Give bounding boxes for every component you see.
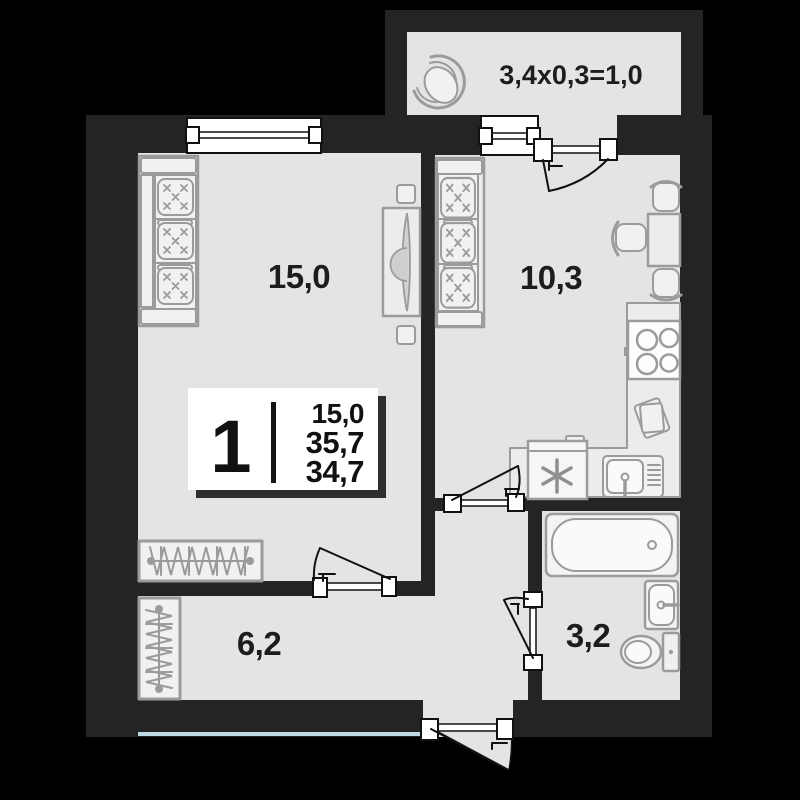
hallway-corridor-floor bbox=[435, 511, 528, 596]
wardrobe-icon bbox=[139, 541, 262, 581]
bathroom-label: 3,2 bbox=[566, 617, 611, 654]
toilet-icon bbox=[621, 633, 679, 671]
kitchen-sofa-icon bbox=[436, 158, 484, 327]
floor-plan: 3,4x0,3=1,0 15,0 10,3 6,2 3,2 1 15,0 35,… bbox=[0, 0, 800, 800]
chair-icon-top bbox=[651, 182, 681, 212]
kitchen-balcony-window bbox=[479, 116, 540, 155]
coat-rack-icon bbox=[139, 598, 180, 699]
sofa-icon bbox=[139, 156, 198, 326]
fridge-icon bbox=[528, 436, 587, 499]
reduced-area-value: 34,7 bbox=[306, 454, 364, 489]
kitchen-label: 10,3 bbox=[520, 259, 582, 296]
hallway-floor bbox=[138, 596, 528, 700]
info-badge: 1 15,0 35,7 34,7 bbox=[188, 388, 386, 498]
badge-divider bbox=[271, 402, 276, 483]
chair-icon-bottom bbox=[651, 269, 681, 300]
balcony-label: 3,4x0,3=1,0 bbox=[499, 60, 642, 90]
stove-icon bbox=[624, 321, 680, 379]
kitchen-sink-icon bbox=[603, 456, 663, 497]
room-count: 1 bbox=[210, 405, 251, 488]
washbasin-icon bbox=[645, 581, 678, 629]
bathtub-icon bbox=[546, 514, 678, 576]
dining-table-icon bbox=[648, 214, 680, 266]
living-room-label: 15,0 bbox=[268, 258, 330, 295]
living-room-window bbox=[186, 118, 322, 153]
entry-accent-line bbox=[138, 732, 424, 736]
hallway-label: 6,2 bbox=[237, 625, 282, 662]
